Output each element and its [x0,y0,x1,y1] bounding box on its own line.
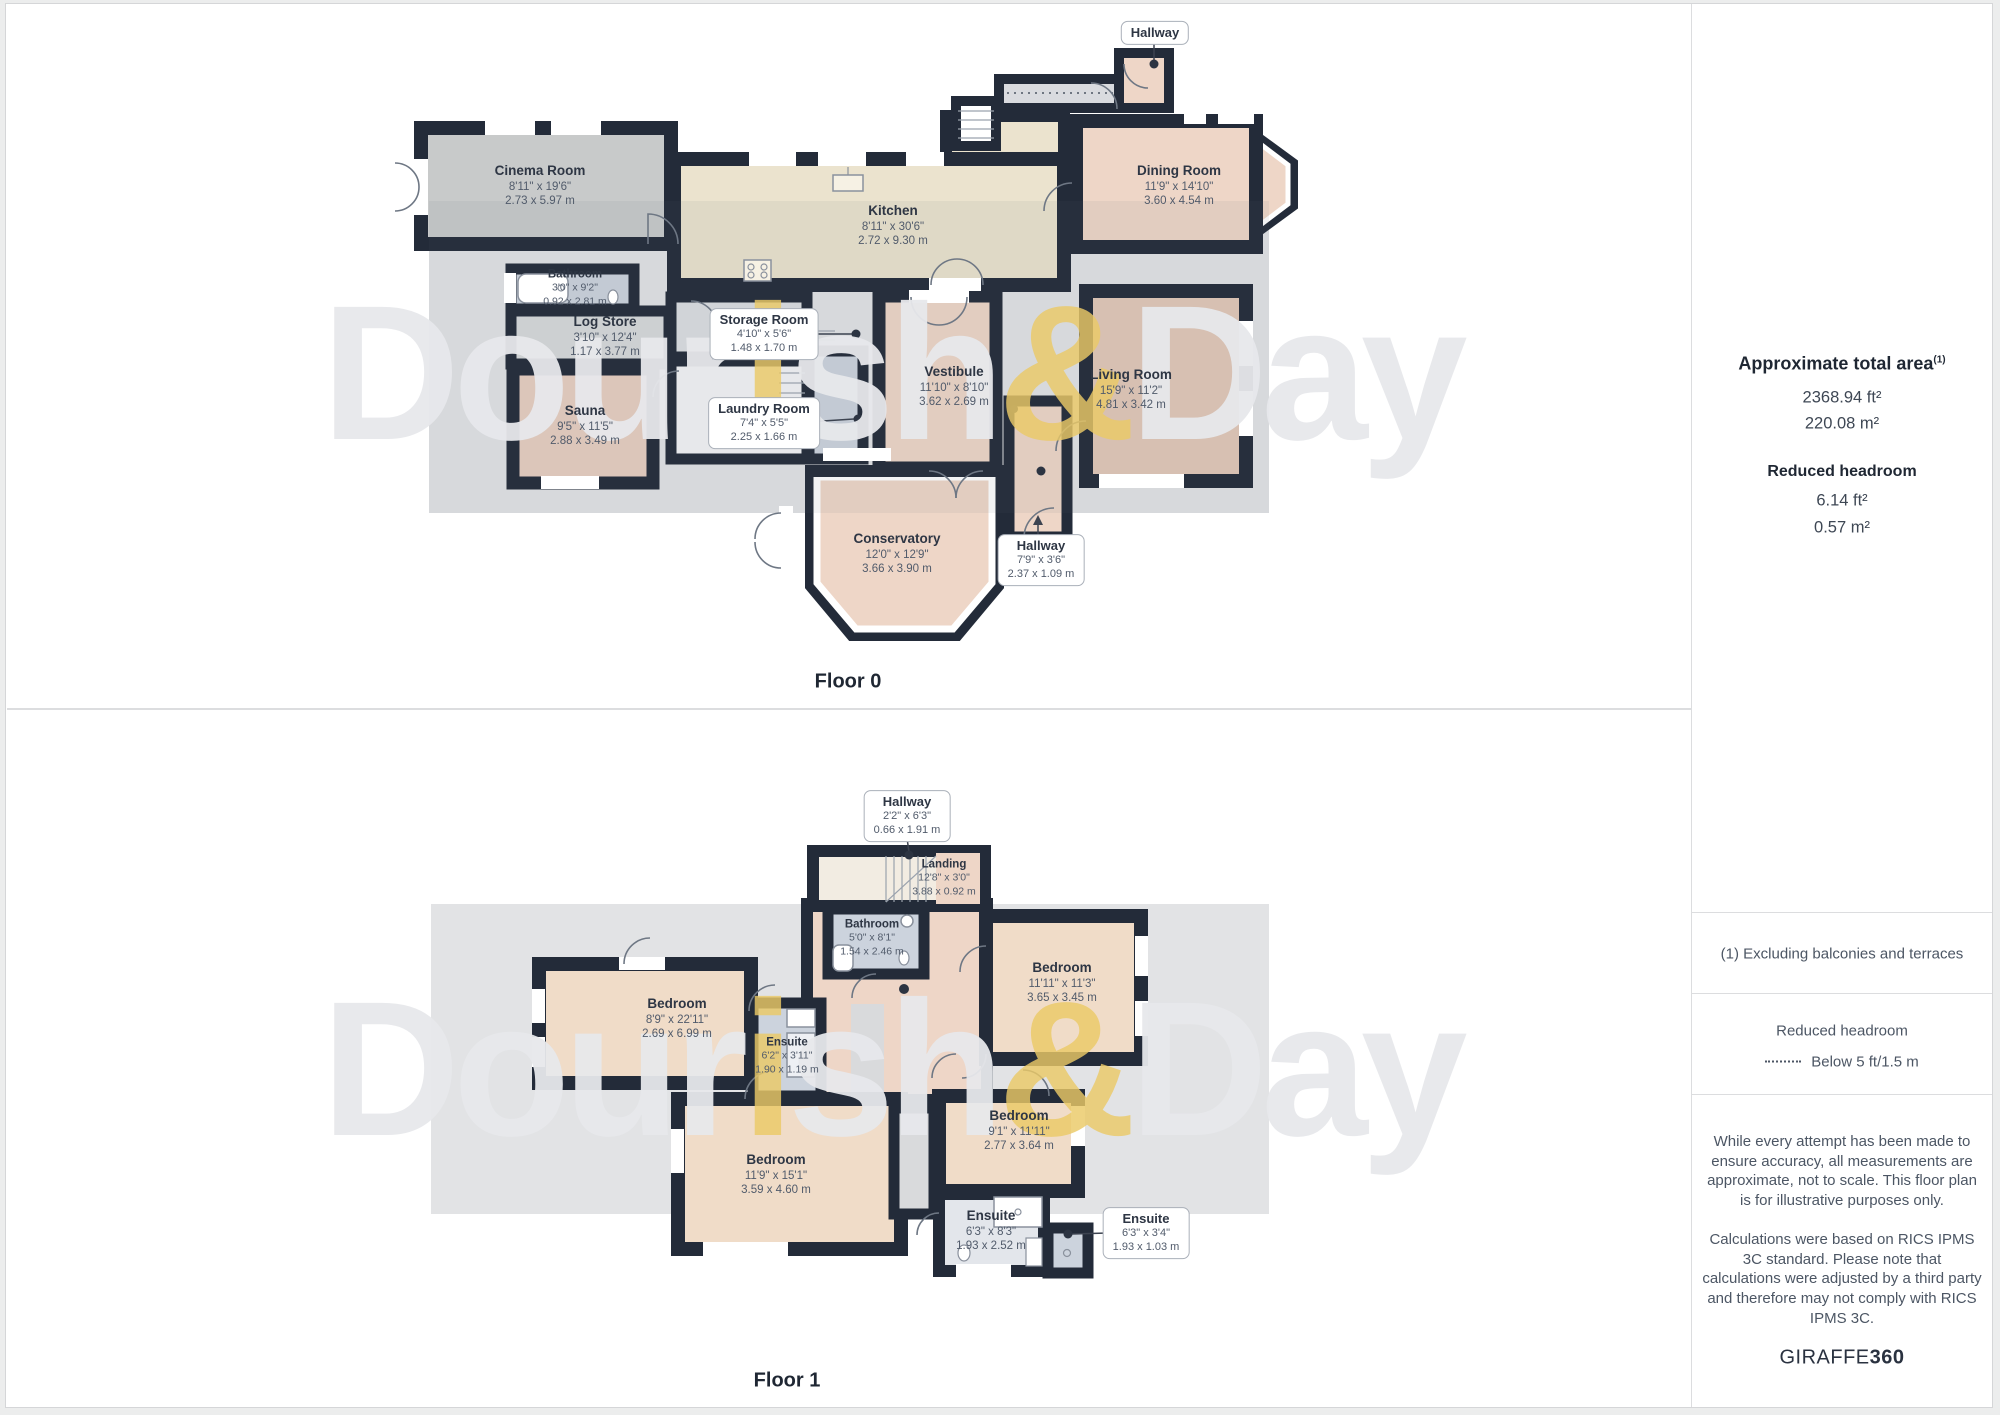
room-label-kitchen: Kitchen 8'11" x 30'6" 2.72 x 9.30 m [858,203,928,249]
room-label-living-room: Living Room 15'9" x 11'2" 4.81 x 3.42 m [1090,367,1172,413]
floor1-title: Floor 1 [754,1370,821,1393]
room-label-cinema-room: Cinema Room 8'11" x 19'6" 2.73 x 5.97 m [495,163,586,209]
total-area-footnote-marker: (1) [1933,355,1945,366]
callout-ensuite-f1: Ensuite 6'3" x 3'4" 1.93 x 1.03 m [1103,1207,1190,1259]
sidebar-section-divider-1 [1692,912,1993,913]
room-label-bedroom-tl: Bedroom 8'9" x 22'11" 2.69 x 6.99 m [642,996,712,1042]
corridor-gray-f1 [894,1108,934,1214]
sidebar-section-divider-2 [1692,993,1993,994]
floor0-terrace-overlay [429,201,1269,513]
floorplan-page: Dourish&Day Dourish&Day Cinema Room 8'11… [5,3,1993,1408]
reduced-headroom-ft: 6.14 ft² [1692,492,1992,511]
room-hallway-top [1119,53,1169,108]
room-label-ensuite-big: Ensuite 6'3" x 8'3" 1.93 x 2.52 m [956,1208,1026,1254]
floors-divider [7,708,1691,710]
callout-hallway-f1: Hallway 2'2" x 6'3" 0.66 x 1.91 m [864,790,951,842]
sidebar-section-divider-3 [1692,1094,1993,1095]
room-label-bedroom-r: Bedroom 9'1" x 11'11" 2.77 x 3.64 m [984,1108,1054,1154]
footnote-exclusions: (1) Excluding balconies and terraces [1692,946,1992,963]
dotted-line-legend-swatch [1765,1059,1801,1063]
sidebar-divider [1691,4,1692,1408]
room-label-vestibule: Vestibule 11'10" x 8'10" 3.62 x 2.69 m [919,364,989,410]
callout-hallway-bottom: Hallway 7'9" x 3'6" 2.37 x 1.09 m [998,534,1085,586]
room-label-bathroom-f1: Bathroom 5'0" x 8'1" 1.54 x 2.46 m [840,918,904,959]
room-label-landing: Landing 12'8" x 3'0" 3.88 x 0.92 m [912,858,976,899]
disclaimer-rics: Calculations were based on RICS IPMS 3C … [1702,1230,1982,1328]
floor0-title: Floor 0 [815,671,882,694]
total-area-m: 220.08 m² [1692,415,1992,434]
disclaimer-accuracy: While every attempt has been made to ens… [1702,1132,1982,1211]
room-label-bedroom-tr: Bedroom 11'11" x 11'3" 3.65 x 3.45 m [1027,960,1097,1006]
room-label-bathroom-f0: Bathroom 3'0" x 9'2" 0.92 x 2.81 m [543,268,607,309]
total-area-ft: 2368.94 ft² [1692,389,1992,408]
giraffe360-logo: GIRAFFE360 [1692,1347,1992,1370]
corridor-top [999,79,1121,108]
room-label-conservatory: Conservatory 12'0" x 12'9" 3.66 x 3.90 m [853,531,940,577]
floorplan-canvas [5,3,1993,1408]
floor0-plan [395,43,1293,635]
room-label-bedroom-mid: Bedroom 11'9" x 15'1" 3.59 x 4.60 m [741,1152,811,1198]
room-label-sauna: Sauna 9'5" x 11'5" 2.88 x 3.49 m [550,403,620,449]
callout-laundry-room: Laundry Room 7'4" x 5'5" 2.25 x 1.66 m [708,397,820,449]
room-label-dining-room: Dining Room 11'9" x 14'10" 3.60 x 4.54 m [1137,163,1221,209]
legend-row: Below 5 ft/1.5 m [1692,1054,1992,1071]
callout-hallway-top: Hallway [1121,21,1189,45]
callout-storage-room: Storage Room 4'10" x 5'6" 1.48 x 1.70 m [710,308,819,360]
room-label-log-store: Log Store 3'10" x 12'4" 1.17 x 3.77 m [570,314,640,360]
total-area-title: Approximate total area(1) [1692,354,1992,375]
legend-text: Below 5 ft/1.5 m [1811,1054,1919,1071]
reduced-headroom-m: 0.57 m² [1692,519,1992,538]
stairs-floor0-top [956,101,996,146]
reduced-headroom-title: Reduced headroom [1692,463,1992,481]
room-label-ensuite-small: Ensuite 6'2" x 3'11" 1.90 x 1.19 m [755,1036,819,1077]
inner-hall-gray [851,1004,884,1100]
legend-title: Reduced headroom [1692,1023,1992,1040]
